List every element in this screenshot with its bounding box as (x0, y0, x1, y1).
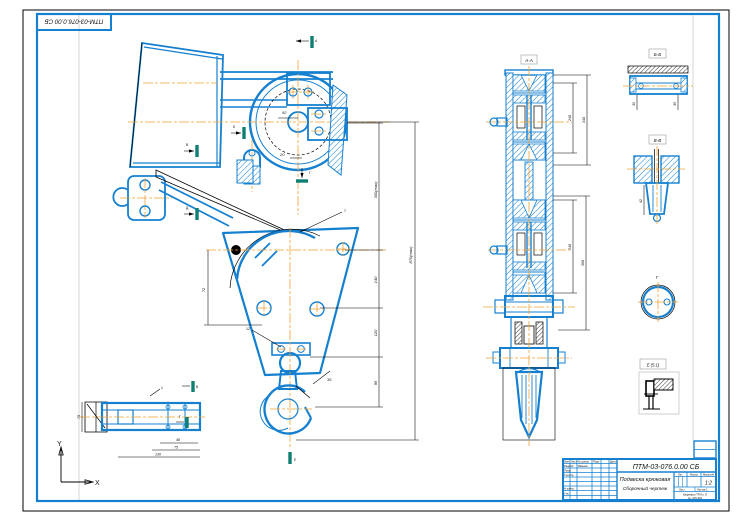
dim-right-2: 140 (373, 276, 378, 283)
y-axis-label: Y (57, 441, 62, 448)
list-label: Лист (679, 488, 685, 492)
doc-name-1: Подвеска крюковая (620, 477, 671, 483)
paper-border (23, 10, 729, 511)
name-razrab: Иванов (578, 464, 588, 468)
org-line-2: гр. МЗ-401 (688, 496, 703, 500)
listov-label: Листов 1 (697, 488, 708, 492)
dim-right-3: 120 (373, 329, 378, 336)
vv-dim-1: 42 (639, 199, 643, 203)
stamp-designation: ПТМ-03-076.0.00 СБ (45, 18, 104, 25)
dim-right-1: 300(max) (373, 181, 378, 199)
dim-misc: 20 (279, 152, 285, 157)
scale-value: 1:2 (705, 481, 712, 487)
dim-outer: 870(max) (408, 246, 413, 264)
sec-dim-3: 240 (568, 115, 572, 122)
col-izm: Изм. (564, 460, 570, 464)
pos-label: 1 (161, 386, 163, 390)
bb-dim-1: 30 (632, 102, 636, 106)
dim-hook: 36 (327, 377, 332, 382)
col-podp: Подп. (593, 460, 600, 464)
drawing-sheet: ПТМ-03-076.0.00 СБ (0, 0, 738, 520)
pos-label: 7 (344, 209, 346, 213)
clamp-block (237, 160, 253, 183)
row-nkontr: Н.контр. (564, 487, 575, 491)
cut-letter: Г (309, 171, 311, 175)
axle-dim-4: 70 (77, 415, 81, 419)
sec-dim-1: 240 (568, 244, 572, 251)
detail-e-label: Е (5:1) (647, 363, 660, 368)
masshtab-label: Масштаб (703, 473, 715, 477)
massa-label: Масса (690, 473, 698, 477)
lit-label: Лит. (678, 473, 683, 477)
bb-dim-2: 35 (673, 102, 677, 106)
row-utv: Утв. (564, 492, 570, 496)
doc-designation: ПТМ-03-076.0.00 СБ (633, 464, 700, 471)
cad-canvas: ПТМ-03-076.0.00 СБ (0, 0, 738, 520)
rope-guard-funnel (130, 43, 223, 167)
axle-dim-1: 48 (176, 438, 180, 442)
sec-dim-4: 340 (582, 117, 586, 123)
col-list: Лист (571, 460, 577, 464)
col-data: Дата (610, 460, 616, 464)
x-axis-label: X (95, 480, 100, 487)
section-b-label: Б-Б (654, 52, 662, 57)
row-tkontr: Т.контр. (564, 473, 574, 477)
sec-dim-2: 360 (581, 260, 585, 266)
row-razrab: Разраб. (564, 464, 574, 468)
dim-left: 72 (201, 287, 206, 292)
section-v-label: В-В (654, 138, 662, 143)
doc-name-2: Сборочный чертеж (623, 485, 668, 492)
axle-dim-3: 130 (155, 453, 161, 457)
col-ndoc: № докум. (578, 461, 590, 464)
row-prov: Пров. (564, 469, 572, 473)
cut-letter: Г (179, 415, 181, 419)
dim-right-4: 95 (373, 380, 378, 385)
section-a-label: А-А (524, 58, 533, 63)
pos-label: 12 (246, 327, 250, 331)
dim-top: 92 (282, 110, 287, 115)
axle-dim-2: 75 (174, 446, 178, 450)
